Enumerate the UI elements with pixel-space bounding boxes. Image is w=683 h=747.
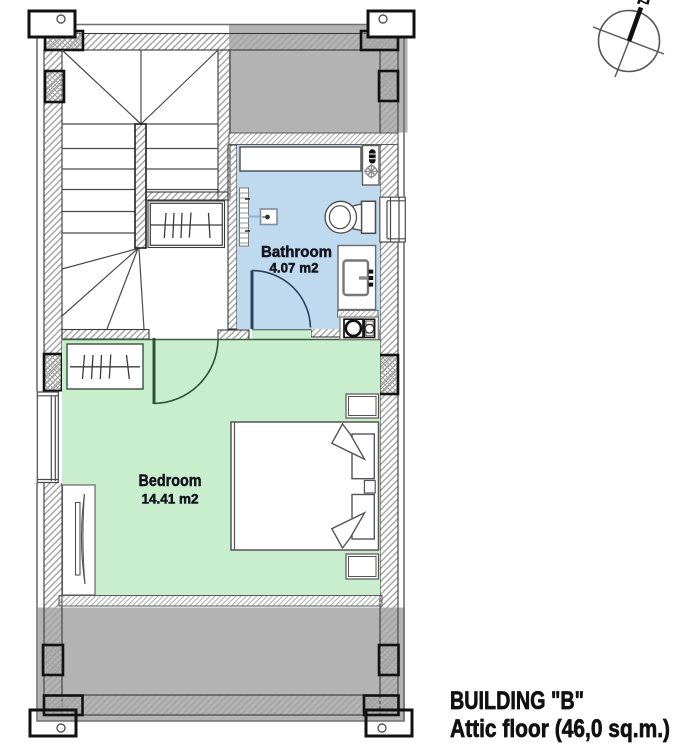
svg-text:Attic floor (46,0 sq.m.): Attic floor (46,0 sq.m.)	[450, 715, 670, 743]
svg-text:Bedroom: Bedroom	[139, 471, 202, 490]
svg-text:Bathroom: Bathroom	[261, 244, 332, 261]
svg-text:BUILDING "B": BUILDING "B"	[450, 687, 584, 715]
svg-text:14.41 m2: 14.41 m2	[142, 491, 199, 507]
svg-text:4.07 m2: 4.07 m2	[270, 261, 319, 276]
